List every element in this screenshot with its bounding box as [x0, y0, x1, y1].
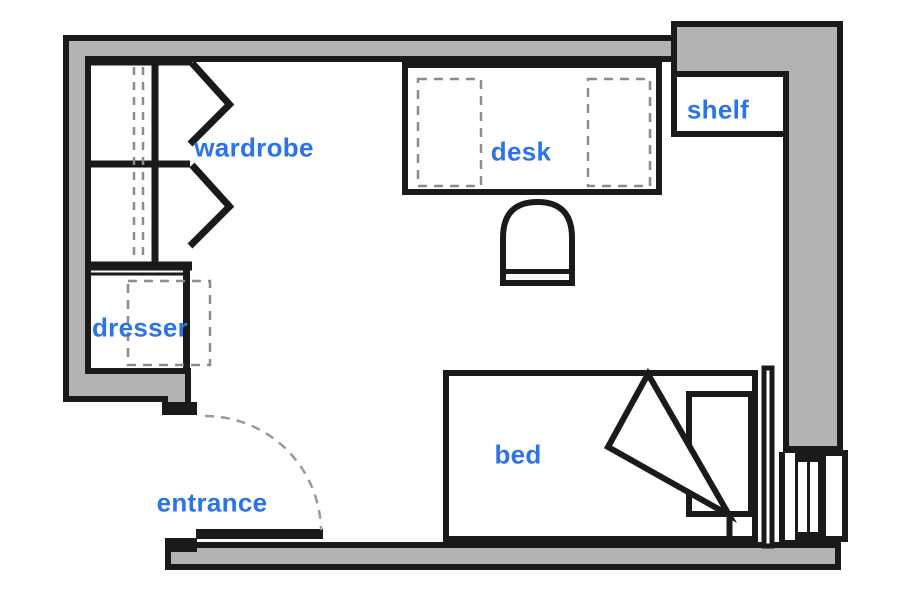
wardrobe-label: wardrobe: [194, 133, 313, 164]
dresser-label: dresser: [92, 313, 188, 344]
entrance-door-leaf: [196, 529, 323, 539]
headboard: [764, 368, 772, 546]
door-jamb-bottom: [165, 538, 197, 552]
wall-bottom: [168, 545, 838, 567]
wardrobe-symbol: [85, 59, 230, 269]
radiator-window-unit: [779, 452, 845, 545]
desk-label: desk: [491, 137, 551, 168]
wardrobe-door-open: [190, 165, 230, 246]
bed-label: bed: [494, 440, 541, 471]
shelf-label: shelf: [687, 95, 749, 126]
chair-symbol: [503, 202, 572, 283]
door-jamb-top: [162, 402, 197, 415]
entrance-label: entrance: [157, 488, 268, 519]
desk-symbol: [405, 65, 659, 192]
floor-plan-drawing: [0, 0, 900, 600]
floor-plan: wardrobe desk shelf dresser bed entrance: [0, 0, 900, 600]
